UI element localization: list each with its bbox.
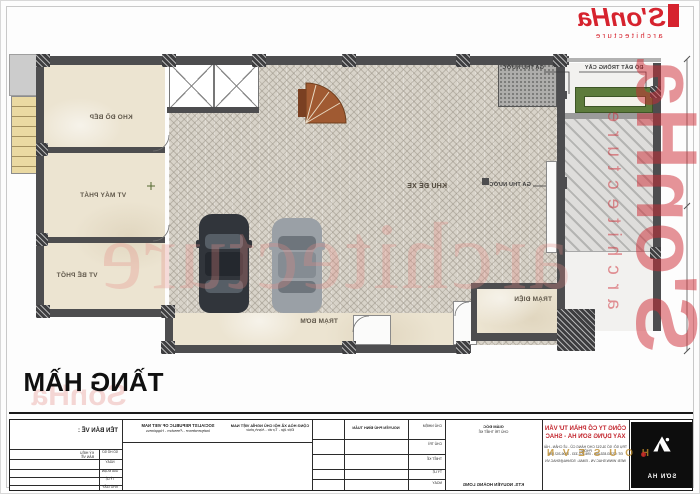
- wall-left: [36, 56, 44, 317]
- entry-landing: [9, 54, 39, 96]
- tb-vline: [542, 420, 543, 490]
- tb-role-label: NGÀY: [408, 482, 444, 486]
- logo-tagline: architecture: [563, 31, 693, 40]
- tb-republic-vn-2: Độc lập - Tự do - Hạnh phúc: [230, 428, 310, 432]
- tb-company-5: WEB: WWW.SHAC.VN - EMAIL: SONHA@SHAC.VN: [544, 460, 627, 464]
- wall-ramp-outer: [653, 63, 661, 331]
- car-windshield: [205, 234, 243, 249]
- titleblock-top-rule: [9, 412, 693, 414]
- tb-republic-en-2: Independence - Freedom - Happiness: [126, 429, 230, 433]
- wall-td-bottom: [471, 333, 561, 341]
- planter-inner: [584, 96, 646, 107]
- wall-bottom-left: [36, 309, 173, 317]
- car-roof: [205, 252, 243, 276]
- car-rear-window: [278, 281, 316, 293]
- tb-ten-ban-ve: TÊN BẢN VẼ :: [18, 428, 118, 435]
- column: [650, 86, 661, 98]
- tb-row-label: SỐ HỒ SƠ: [100, 451, 120, 455]
- elevator-shaft-1: [169, 63, 214, 109]
- tb-director-role: GIÁM ĐỐC: [447, 425, 540, 430]
- car-rear-window: [205, 280, 243, 293]
- column: [456, 54, 470, 67]
- column: [342, 341, 356, 354]
- titleblock: TÊN BẢN VẼ : KÝ HIỆU BẢN VẼ SỐ HỒ SƠ NGÀ…: [9, 419, 693, 491]
- column: [342, 54, 356, 67]
- car-mirror: [196, 240, 200, 248]
- label-tram-dien: TRẠM ĐIỆN: [507, 296, 559, 303]
- tb-row-label: GIAI ĐOẠN: [100, 470, 120, 474]
- marker-square: [559, 91, 567, 99]
- wall-bottom-mid: [165, 345, 471, 353]
- tb-logo-text: SƠN HÀ: [631, 474, 692, 481]
- tb-company-4: ĐT: 02253.833.666 - 096.202.333 - 0906.2…: [544, 453, 627, 457]
- tb-role-label: TỶ LỆ: [408, 471, 444, 475]
- electric-room-floor: [477, 287, 557, 333]
- tb-vline: [445, 420, 446, 490]
- tb-director-role2: CHỦ TRÌ THIẾT KẾ: [447, 431, 540, 435]
- column: [650, 247, 661, 259]
- drawing-sheet: KHO ĐỒ BẾP VT MÁY PHÁT VT BỂ PHỐT KHU ĐỂ…: [0, 0, 700, 494]
- label-do-dat-trong-cay: ĐỔ ĐẤT TRỒNG CÂY: [576, 65, 652, 71]
- label-tram-bom: TRẠM BƠM: [293, 318, 345, 325]
- tb-row-label: KHỔ GIẤY: [100, 486, 120, 490]
- column: [161, 341, 175, 354]
- tb-row-label: TỶ LỆ: [100, 478, 120, 482]
- sonha-logo-glyph: [649, 432, 675, 458]
- page-title: TẦNG HẦM: [16, 367, 171, 398]
- column: [36, 143, 48, 156]
- logo-brand-text: S'onHa: [577, 4, 666, 30]
- tb-republic-en: SOCIALIST REPUBLIC OF VIET NAM Independe…: [126, 424, 230, 433]
- column: [36, 305, 50, 318]
- car-mirror: [248, 240, 252, 248]
- watermark-gold-dot: [641, 452, 646, 457]
- ramp-hatch: [565, 119, 653, 251]
- label-ga-thu-nuoc-top: GA THU NƯỚC: [499, 65, 547, 71]
- tb-hline: [312, 469, 445, 470]
- tb-vline: [122, 420, 123, 490]
- sonha-logo: S'onHa architecture: [563, 4, 693, 52]
- label-vt-be-phot: VT BỂ PHỐT: [45, 272, 109, 279]
- tb-director-name: KTS. NGUYỄN HOÀNG LONG: [447, 482, 540, 487]
- label-ga-thu-nuoc-mid: GA THU NƯỚC: [485, 182, 535, 188]
- tb-role-label: THIẾT KẾ: [408, 458, 444, 462]
- staircase: [11, 96, 39, 174]
- label-khu-de-xe: KHU ĐỂ XE: [401, 183, 453, 190]
- drain-shaft: [546, 161, 557, 253]
- tb-company-2: XÂY DỰNG SƠN HÀ - SHAC: [544, 434, 627, 441]
- tb-left-note: KÝ HIỆU BẢN VẼ: [14, 451, 94, 459]
- alcove-room: [353, 315, 391, 345]
- tb-hline: [312, 479, 445, 480]
- wall-td-top: [471, 283, 557, 289]
- wall-ramp-top: [565, 58, 661, 62]
- elevator-wall: [167, 107, 259, 113]
- corner-column: [557, 309, 595, 351]
- planter-strip: [575, 87, 653, 113]
- column: [553, 54, 567, 67]
- logo-block: [668, 4, 679, 27]
- tb-designer-name: NGUYỄN PHÚ ĐÌNH TUẤN: [346, 426, 406, 430]
- car-roof: [278, 252, 316, 278]
- partition-1: [44, 147, 165, 153]
- label-kho-do-bep: KHO ĐỒ BẾP: [79, 114, 143, 121]
- ramp-edge-line: [565, 251, 653, 252]
- tb-republic-vn: CỘNG HÒA XÃ HỘI CHỦ NGHĨA VIỆT NAM Độc l…: [230, 424, 310, 433]
- car-mirror: [321, 242, 325, 250]
- tb-row-label: NGÀY: [100, 461, 120, 465]
- tb-hline: [312, 439, 445, 440]
- marker-square: [557, 177, 567, 189]
- label-vt-may-phat: VT MÁY PHÁT: [65, 192, 141, 199]
- partition-2: [44, 237, 165, 243]
- car-silver: [272, 218, 322, 313]
- car-dark: [199, 214, 249, 313]
- tb-hline: [122, 442, 312, 443]
- tb-role-label: CHỦ TRÌ: [408, 443, 444, 447]
- tb-left-note-2: BẢN VẼ: [14, 455, 94, 459]
- column: [456, 341, 470, 354]
- tb-company-1: CÔNG TY CỔ PHẦN TƯ VẤN: [544, 426, 627, 433]
- elevator-shaft-2: [214, 63, 259, 109]
- column: [162, 54, 176, 67]
- column: [161, 305, 175, 318]
- tb-hline: [312, 454, 445, 455]
- tb-vline: [629, 420, 630, 490]
- car-mirror: [269, 242, 273, 250]
- column: [36, 233, 48, 246]
- column: [252, 54, 266, 67]
- wall-top: [36, 56, 569, 65]
- car-windshield: [278, 236, 316, 250]
- tb-role-label: CHỦ NHIỆM: [408, 425, 444, 429]
- column: [36, 54, 50, 67]
